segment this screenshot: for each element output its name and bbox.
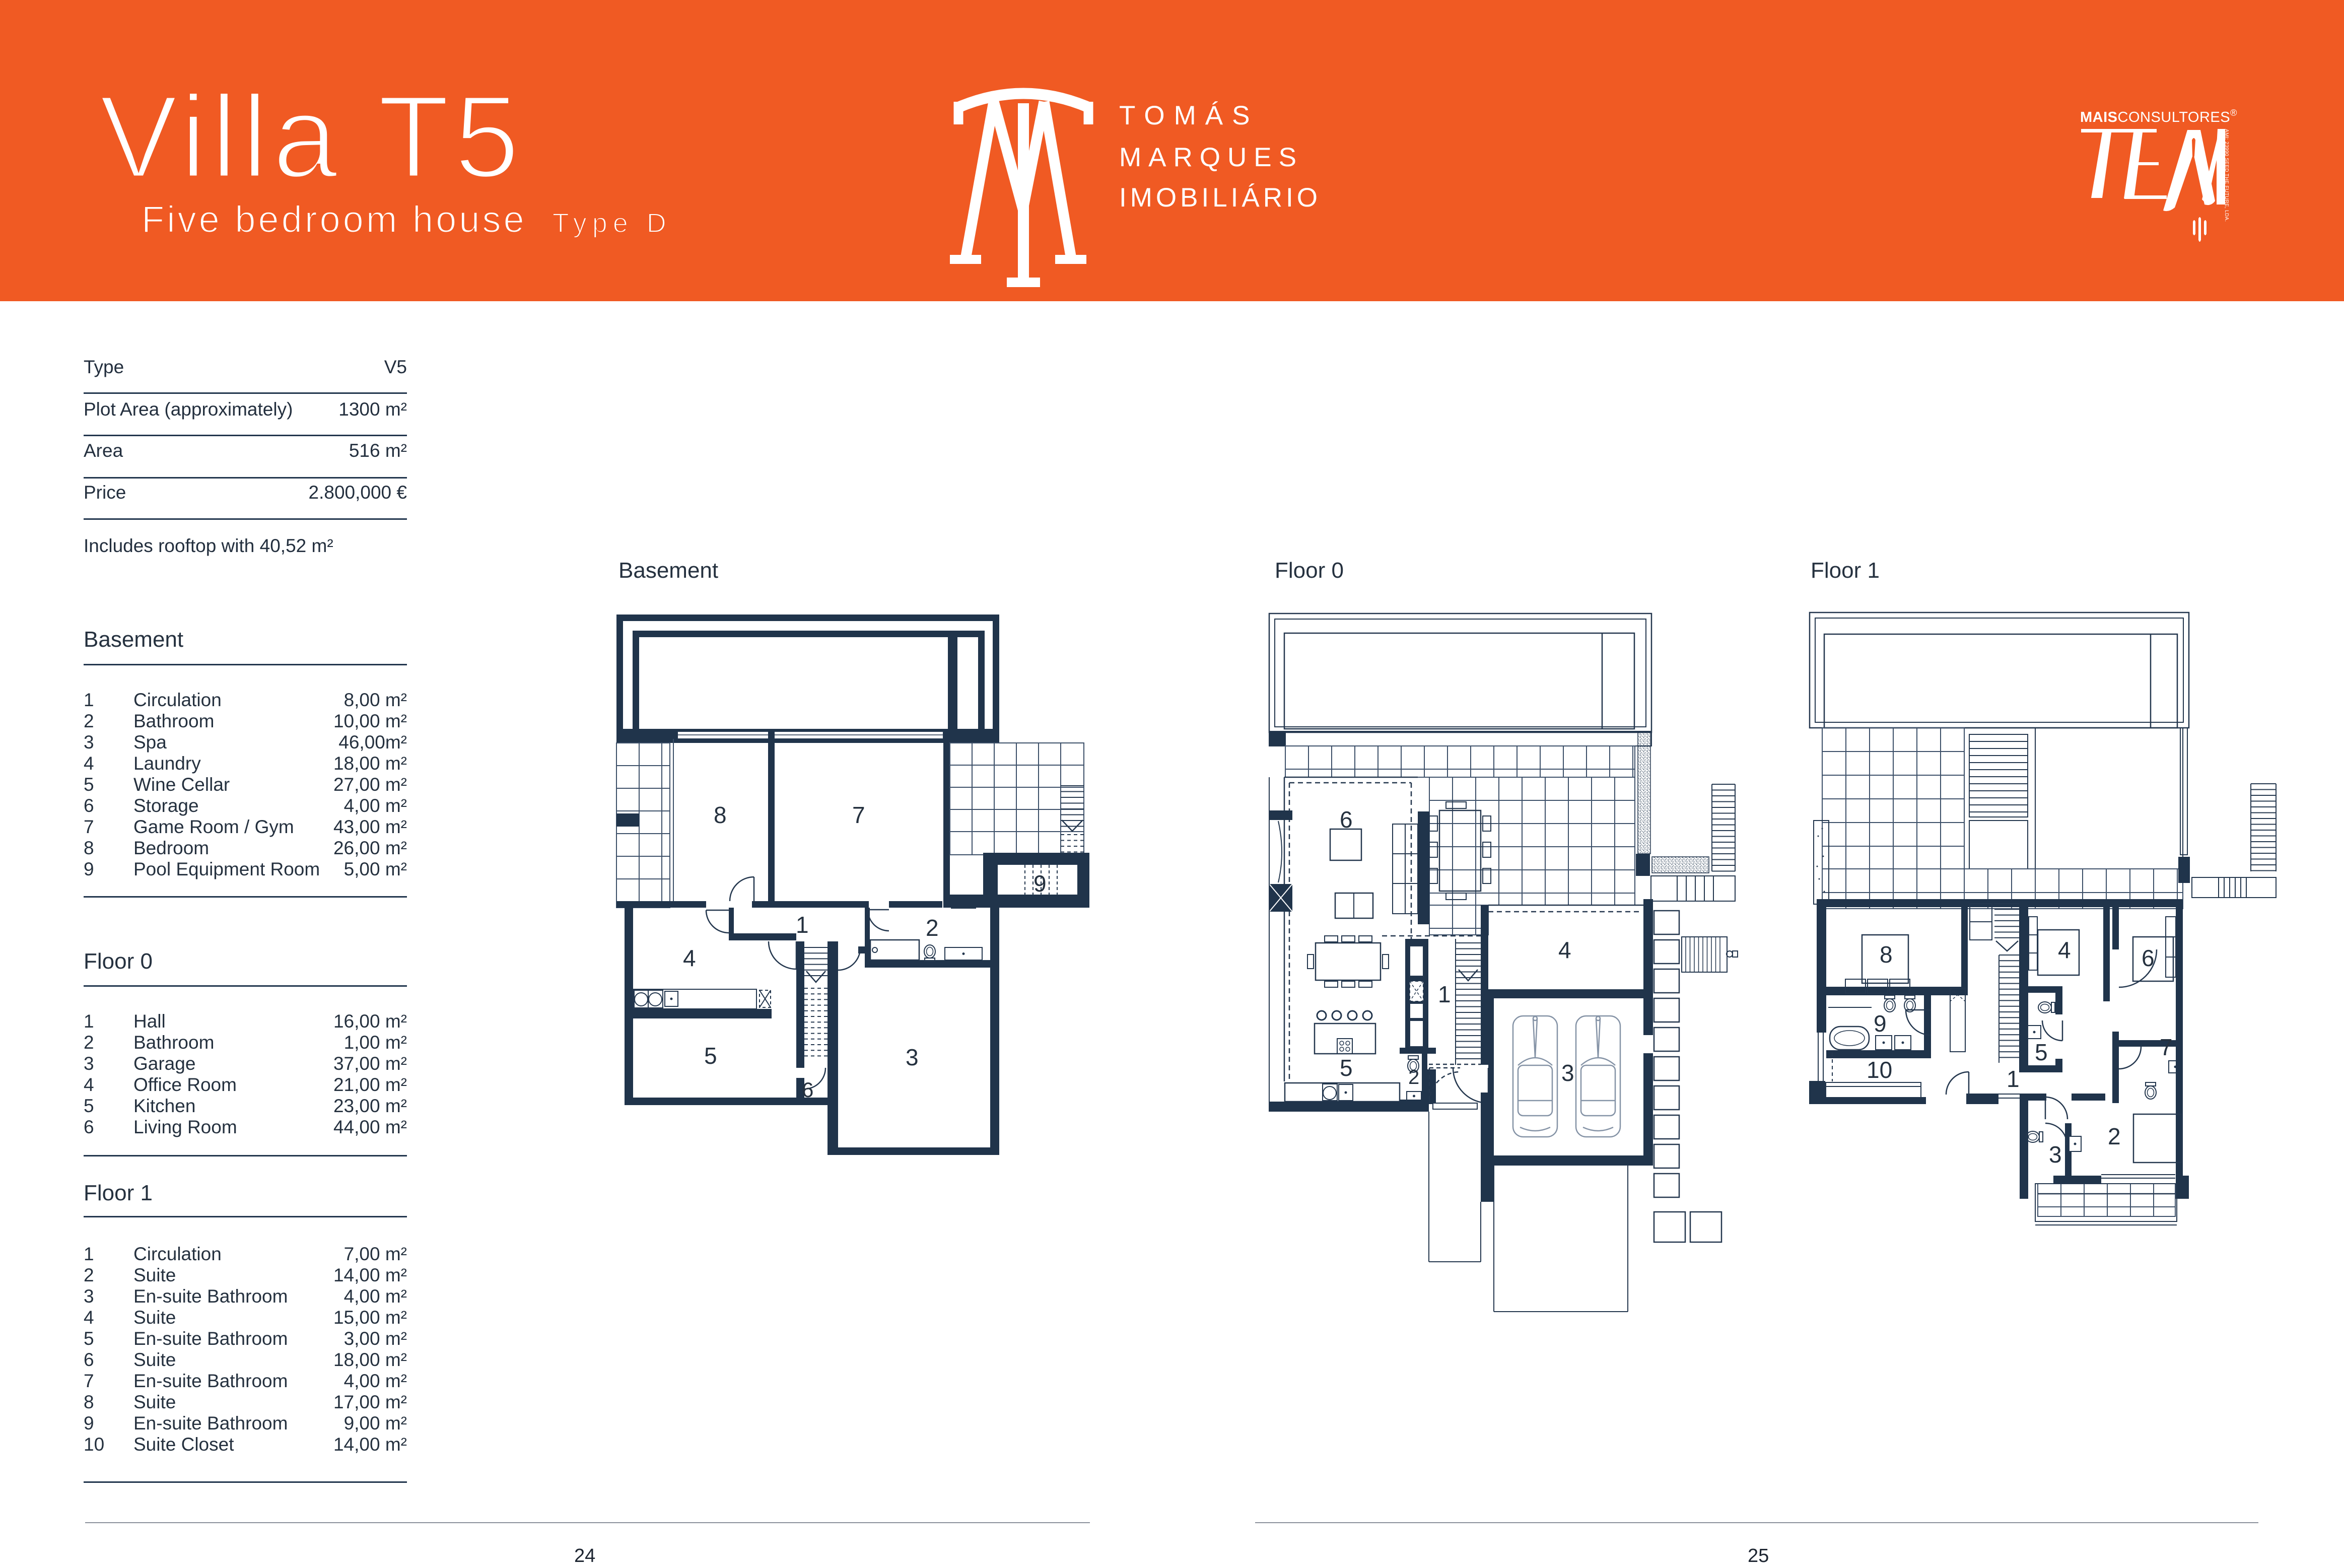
- svg-text:9: 9: [1874, 1010, 1887, 1037]
- svg-text:4: 4: [1558, 937, 1571, 963]
- svg-text:7: 7: [852, 802, 865, 828]
- svg-text:1: 1: [796, 912, 809, 938]
- svg-text:2: 2: [1408, 1066, 1419, 1088]
- svg-text:5: 5: [1340, 1055, 1353, 1081]
- svg-text:8: 8: [1880, 941, 1893, 968]
- svg-text:8: 8: [714, 802, 727, 828]
- svg-text:4: 4: [2058, 937, 2071, 963]
- svg-text:3: 3: [1561, 1060, 1574, 1086]
- svg-text:2: 2: [926, 915, 939, 941]
- svg-text:4: 4: [683, 945, 696, 971]
- svg-text:3: 3: [906, 1044, 919, 1070]
- svg-text:1: 1: [1438, 981, 1451, 1007]
- svg-text:3: 3: [2049, 1141, 2062, 1168]
- svg-text:2: 2: [2108, 1123, 2121, 1149]
- svg-text:5: 5: [2035, 1039, 2048, 1065]
- svg-text:7: 7: [2160, 1034, 2173, 1060]
- svg-text:9: 9: [1033, 870, 1047, 897]
- svg-text:5: 5: [704, 1043, 717, 1069]
- svg-text:1: 1: [2007, 1066, 2020, 1092]
- svg-text:10: 10: [1867, 1057, 1892, 1083]
